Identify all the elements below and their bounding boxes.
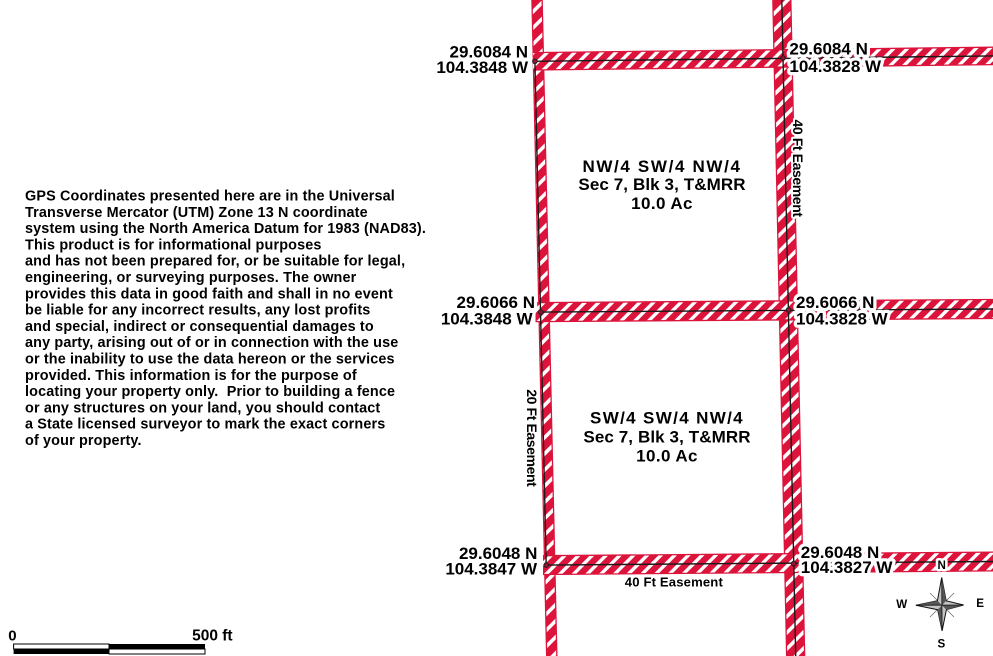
svg-text:system using the North America: system using the North America Datum for… [25,221,426,237]
svg-text:of your property.: of your property. [25,433,142,449]
svg-text:engineering, or surveying purp: engineering, or surveying purposes. The … [25,270,357,286]
svg-text:NW/4 SW/4 NW/4: NW/4 SW/4 NW/4 [582,157,741,176]
svg-text:104.3847 W: 104.3847 W [445,560,538,579]
svg-text:provided. This information is: provided. This information is for the pu… [25,368,357,384]
svg-text:20 Ft Easement: 20 Ft Easement [524,389,540,487]
svg-text:10.0 Ac: 10.0 Ac [636,446,698,465]
svg-text:locating your property only.: locating your property only. Prior to bu… [25,384,395,400]
svg-text:This product is for informatio: This product is for informational purpos… [25,237,322,253]
svg-text:W: W [896,598,907,611]
svg-text:any party, arising out of or i: any party, arising out of or in connecti… [25,335,398,351]
svg-text:be liable for any incorrect re: be liable for any incorrect results, any… [25,303,370,319]
svg-text:104.3848 W: 104.3848 W [441,309,534,328]
svg-text:and has not been prepared for,: and has not been prepared for, or be sui… [25,254,405,270]
svg-text:10.0 Ac: 10.0 Ac [631,194,693,213]
svg-text:Sec 7, Blk 3, T&MRR: Sec 7, Blk 3, T&MRR [583,427,750,446]
svg-text:and special, indirect or conse: and special, indirect or consequential d… [25,319,374,335]
svg-text:29.6084 N: 29.6084 N [789,40,867,59]
svg-text:104.3828 W: 104.3828 W [789,57,882,76]
svg-text:or the inability to use the da: or the inability to use the data hereon … [25,352,395,368]
svg-text:Transverse Mercator (UTM) Zone: Transverse Mercator (UTM) Zone 13 N coor… [25,205,368,221]
svg-text:104.3848 W: 104.3848 W [436,58,529,77]
svg-text:provides this data in good fai: provides this data in good faith and sha… [25,286,393,302]
svg-text:500 ft: 500 ft [192,628,233,645]
svg-text:Sec 7, Blk 3, T&MRR: Sec 7, Blk 3, T&MRR [578,175,745,194]
svg-text:or any structures on your land: or any structures on your land, you shou… [25,400,380,416]
svg-text:E: E [976,597,984,610]
svg-text:40 Ft Easement: 40 Ft Easement [790,120,806,218]
svg-text:104.3827 W: 104.3827 W [801,558,894,577]
svg-text:0: 0 [8,628,16,645]
svg-text:N: N [938,559,946,572]
svg-text:S: S [938,637,946,650]
svg-text:GPS Coordinates presented here: GPS Coordinates presented here are in th… [25,189,395,205]
svg-text:SW/4 SW/4 NW/4: SW/4 SW/4 NW/4 [590,408,744,427]
svg-text:40 Ft Easement: 40 Ft Easement [625,574,724,589]
svg-text:a State licensed surveyor to m: a State licensed surveyor to mark the ex… [25,417,385,433]
svg-text:104.3828 W: 104.3828 W [796,309,889,328]
